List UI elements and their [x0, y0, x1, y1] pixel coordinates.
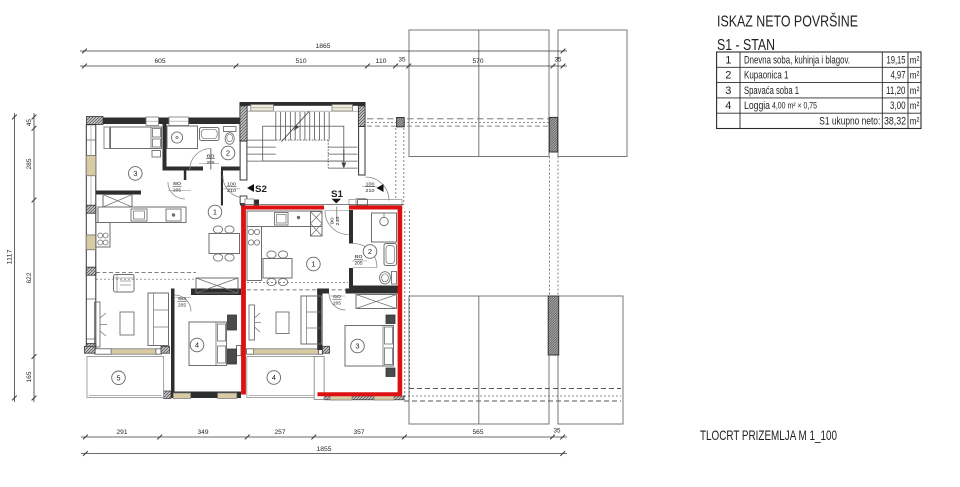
svg-text:S1: S1 [331, 189, 344, 200]
svg-text:205: 205 [207, 160, 215, 166]
svg-text:S2: S2 [255, 184, 267, 195]
svg-text:1: 1 [213, 208, 217, 217]
svg-text:205: 205 [333, 300, 341, 306]
svg-text:165: 165 [26, 371, 33, 383]
svg-text:m²: m² [910, 86, 920, 97]
svg-text:35: 35 [555, 57, 562, 64]
svg-text:35: 35 [554, 428, 561, 435]
svg-text:110: 110 [376, 58, 388, 65]
svg-text:2: 2 [368, 247, 372, 256]
svg-text:570: 570 [473, 58, 485, 65]
svg-text:205: 205 [178, 302, 186, 308]
svg-text:510: 510 [296, 58, 308, 65]
svg-text:38,32: 38,32 [884, 116, 906, 128]
svg-text:285: 285 [26, 158, 33, 170]
svg-text:m²: m² [910, 71, 920, 82]
svg-text:TLOCRT PRIZEMLJA M 1_100: TLOCRT PRIZEMLJA M 1_100 [700, 427, 837, 443]
svg-text:45: 45 [26, 119, 33, 126]
svg-text:ISKAZ NETO POVRŠINE: ISKAZ NETO POVRŠINE [717, 11, 858, 30]
svg-text:4,00 m² × 0,75: 4,00 m² × 0,75 [772, 101, 817, 111]
svg-text:291: 291 [117, 429, 129, 436]
svg-text:210: 210 [335, 216, 341, 225]
svg-text:257: 257 [275, 429, 287, 436]
svg-text:357: 357 [354, 429, 366, 436]
svg-text:3: 3 [133, 169, 137, 178]
svg-text:622: 622 [26, 272, 33, 284]
svg-text:m²: m² [910, 101, 920, 112]
svg-text:2: 2 [226, 149, 230, 158]
svg-text:3,00: 3,00 [890, 100, 906, 112]
svg-text:349: 349 [198, 429, 210, 436]
svg-text:3: 3 [355, 342, 359, 351]
svg-text:Dnevna soba, kuhinja i blagov.: Dnevna soba, kuhinja i blagov. [744, 54, 850, 66]
svg-text:Spavaća soba 1: Spavaća soba 1 [744, 85, 799, 97]
svg-text:210: 210 [366, 188, 375, 194]
svg-text:35: 35 [399, 57, 406, 64]
svg-text:Kupaonica 1: Kupaonica 1 [744, 70, 789, 82]
svg-text:1117: 1117 [7, 249, 14, 265]
svg-text:5: 5 [116, 374, 120, 383]
svg-text:1855: 1855 [317, 446, 333, 453]
svg-text:4,97: 4,97 [891, 70, 906, 82]
svg-text:1865: 1865 [316, 43, 332, 50]
svg-text:m²: m² [910, 117, 920, 128]
svg-text:210: 210 [227, 188, 236, 194]
svg-text:605: 605 [155, 58, 167, 65]
svg-text:2: 2 [725, 70, 731, 82]
svg-text:S1 ukupno neto:: S1 ukupno neto: [819, 116, 880, 128]
svg-text:Loggia: Loggia [744, 100, 771, 112]
svg-text:19,15: 19,15 [887, 54, 906, 66]
svg-text:205: 205 [173, 187, 181, 193]
svg-text:11,20: 11,20 [886, 85, 906, 97]
svg-text:4: 4 [725, 100, 731, 112]
svg-text:m²: m² [910, 55, 920, 66]
svg-text:1: 1 [311, 260, 315, 269]
svg-text:4: 4 [272, 373, 276, 382]
svg-text:1: 1 [725, 54, 731, 66]
svg-text:90: 90 [330, 217, 336, 224]
svg-text:4: 4 [195, 341, 199, 350]
svg-text:3: 3 [725, 85, 731, 97]
svg-text:565: 565 [473, 429, 485, 436]
